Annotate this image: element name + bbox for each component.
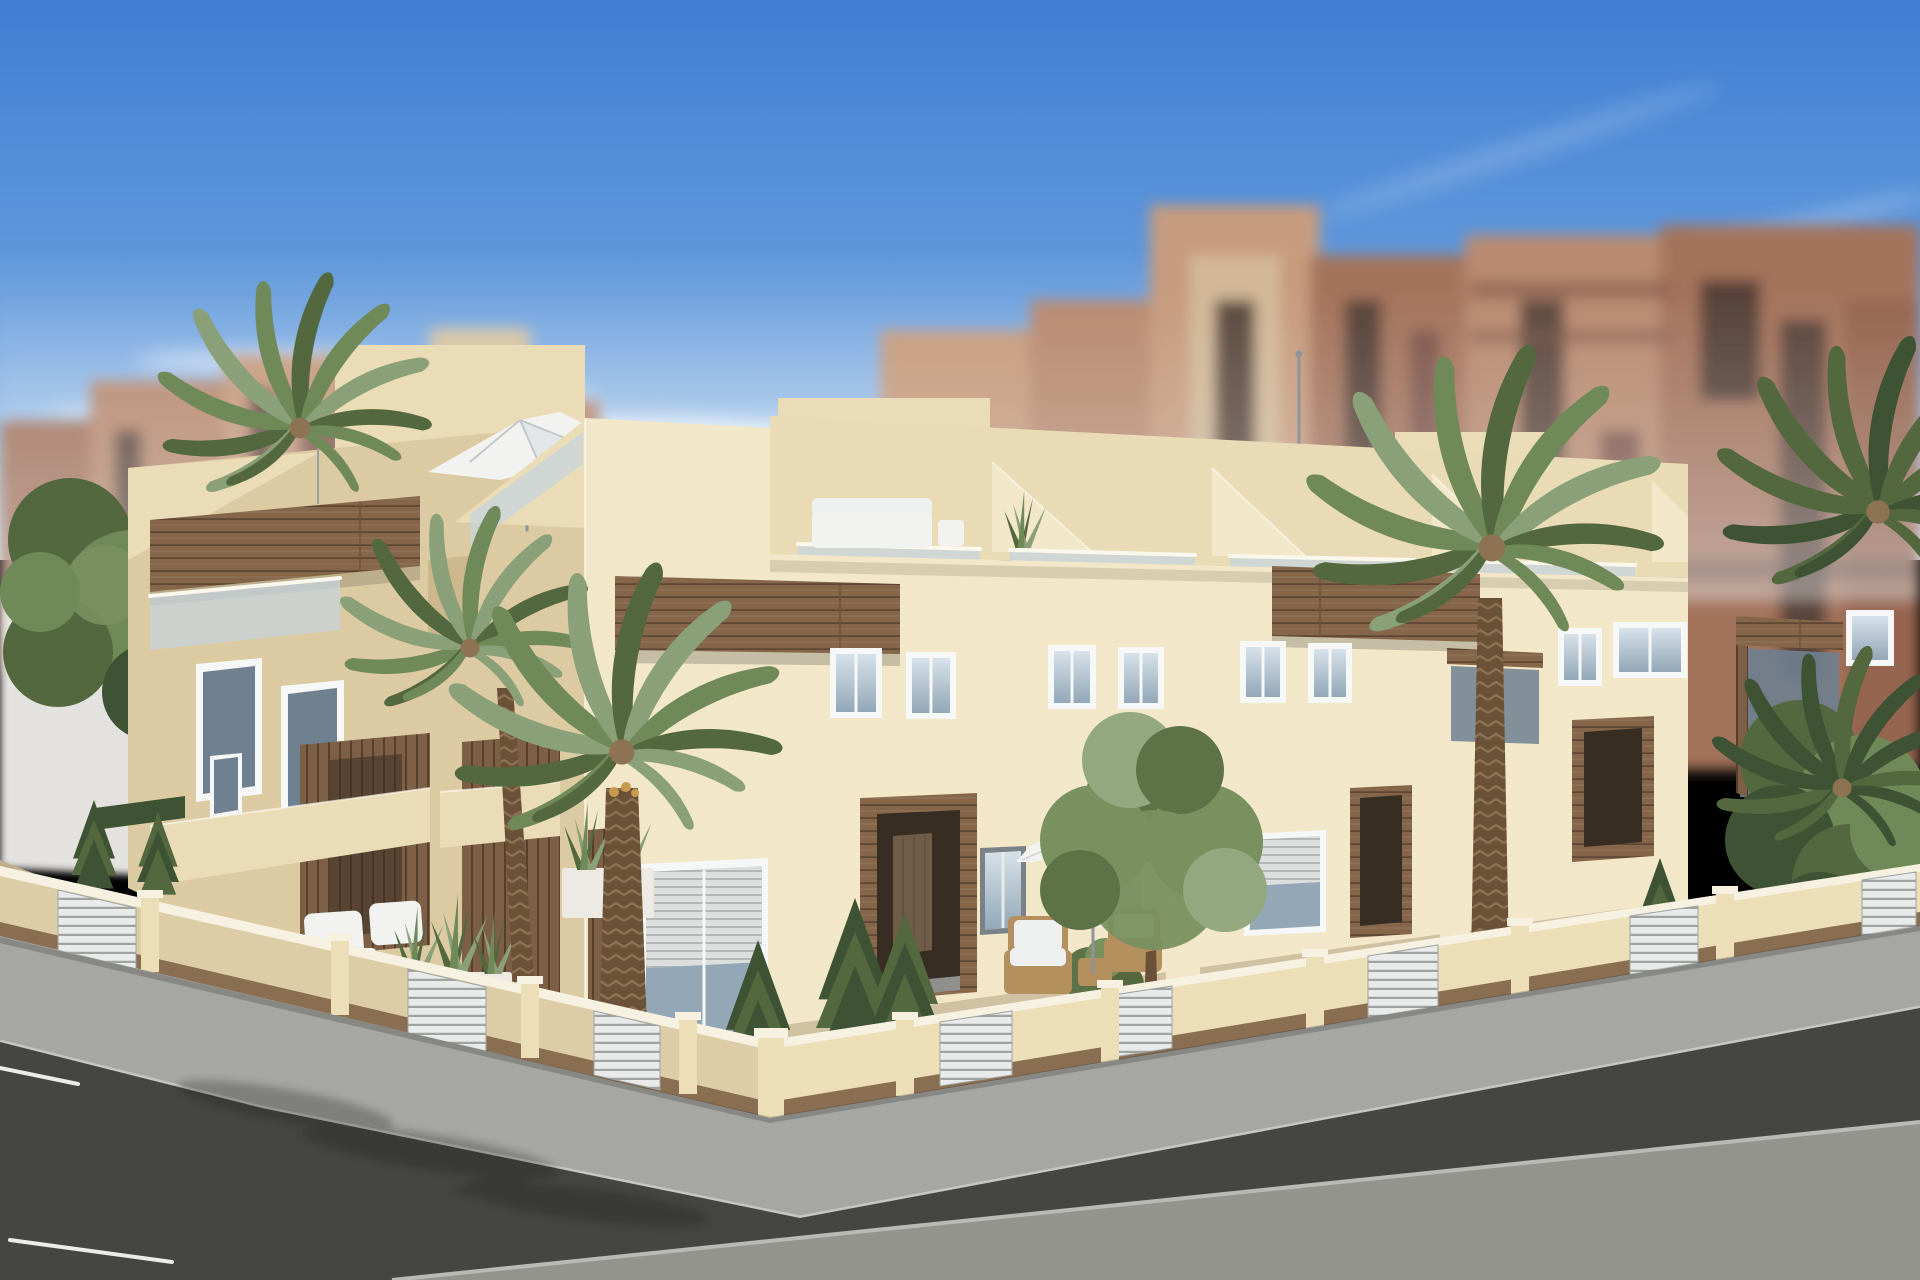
window — [830, 648, 882, 718]
gate-panel — [940, 1011, 1012, 1086]
architectural-render-canvas — [0, 0, 1920, 1280]
window-double — [1613, 622, 1687, 678]
window — [1118, 647, 1164, 709]
window — [1048, 645, 1096, 709]
left-small-window — [210, 753, 242, 818]
fence-corner-pilaster — [754, 1028, 788, 1126]
entrance-portal-2 — [1350, 785, 1412, 938]
window — [1558, 628, 1602, 686]
window — [1240, 641, 1286, 703]
gate-panel — [1368, 945, 1438, 1018]
window — [1308, 643, 1352, 703]
window — [906, 652, 956, 719]
entrance-portal-3 — [1572, 716, 1654, 862]
